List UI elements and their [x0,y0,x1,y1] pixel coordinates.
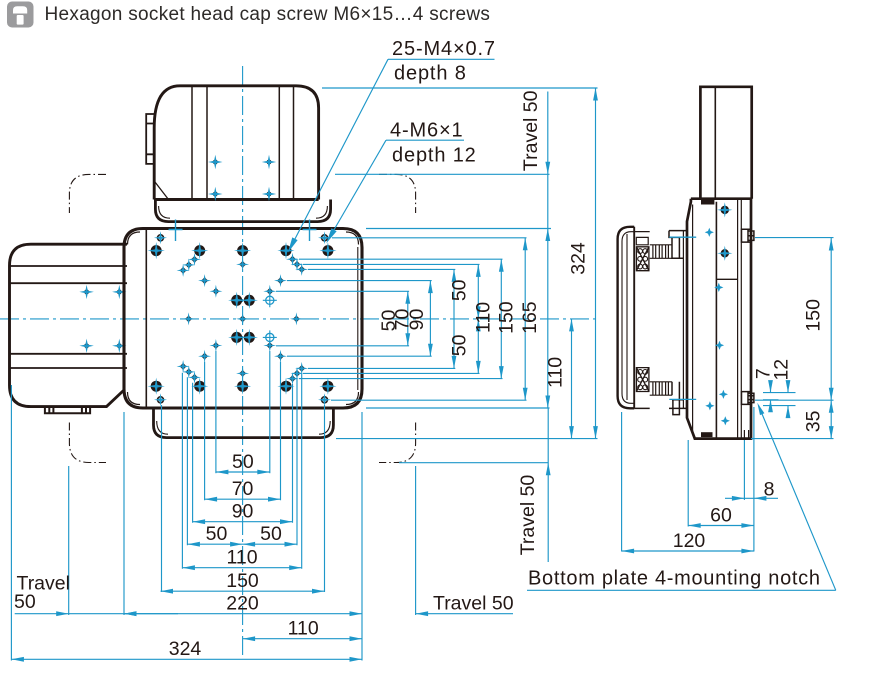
svg-text:165: 165 [519,301,541,334]
svg-text:Travel 50: Travel 50 [520,90,542,171]
svg-text:324: 324 [568,242,590,275]
svg-text:90: 90 [406,309,428,331]
svg-text:depth 12: depth 12 [392,145,477,167]
svg-text:Travel 50: Travel 50 [517,475,539,556]
svg-text:150: 150 [803,299,825,332]
svg-text:4-M6×1: 4-M6×1 [390,120,463,142]
svg-text:25-M4×0.7: 25-M4×0.7 [392,38,496,60]
svg-text:depth 8: depth 8 [394,63,467,85]
svg-text:110: 110 [545,357,567,388]
svg-text:50: 50 [449,334,471,356]
svg-text:220: 220 [226,593,259,615]
svg-text:120: 120 [673,530,706,552]
svg-text:50: 50 [449,279,471,301]
svg-text:Hexagon socket head cap screw: Hexagon socket head cap screw M6×15…4 sc… [45,4,491,25]
svg-text:90: 90 [232,501,254,523]
svg-text:Travel 50: Travel 50 [433,592,514,614]
svg-text:324: 324 [169,638,202,660]
svg-text:Bottom plate 4-mounting notch: Bottom plate 4-mounting notch [528,568,821,590]
svg-text:50: 50 [260,523,282,545]
svg-text:60: 60 [710,504,732,526]
svg-text:150: 150 [226,570,259,592]
svg-text:110: 110 [473,302,495,333]
svg-text:110: 110 [227,547,258,569]
svg-text:35: 35 [803,410,825,432]
svg-text:8: 8 [764,478,775,500]
svg-text:50: 50 [232,451,254,473]
svg-text:150: 150 [496,301,518,334]
svg-text:50: 50 [14,591,36,613]
svg-text:50: 50 [206,523,228,545]
svg-text:70: 70 [232,478,254,500]
svg-text:110: 110 [288,618,319,640]
svg-text:12: 12 [771,359,793,381]
